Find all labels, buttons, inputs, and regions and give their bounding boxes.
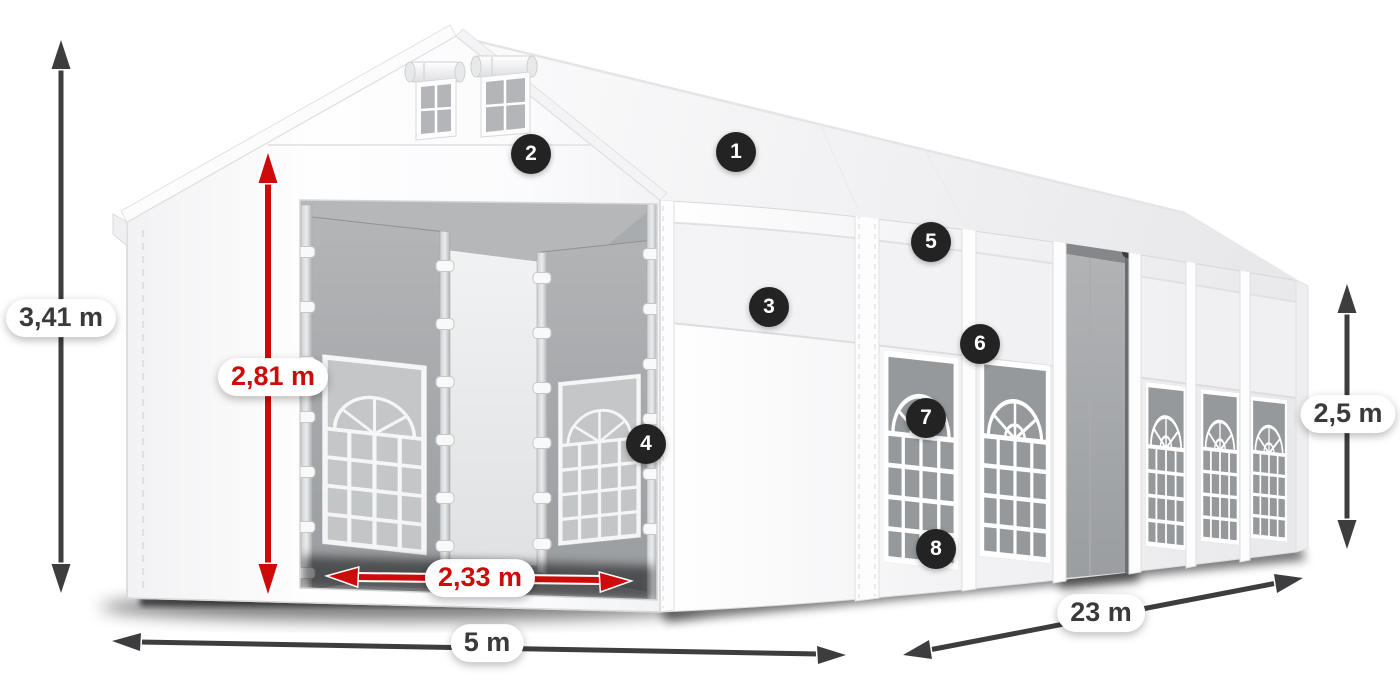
entrance-door-right xyxy=(542,240,654,592)
callout-hotspot-8[interactable]: 8 xyxy=(916,529,956,569)
callout-hotspot-6[interactable]: 6 xyxy=(960,324,1000,364)
callout-hotspot-1[interactable]: 1 xyxy=(716,132,756,172)
tent-dimension-diagram: 3,41 m 2,81 m 2,33 m 5 m 23 m 2,5 m 1 2 … xyxy=(0,0,1400,700)
dimension-label-total-height: 3,41 m xyxy=(6,299,116,337)
callout-hotspot-7[interactable]: 7 xyxy=(906,398,946,438)
entrance-door-left xyxy=(303,216,446,590)
gable-vent-right xyxy=(471,56,537,137)
dimension-label-entrance-height: 2,81 m xyxy=(218,358,328,396)
dimension-label-entrance-width: 2,33 m xyxy=(425,559,535,597)
dimension-label-front-width: 5 m xyxy=(451,624,524,662)
callout-hotspot-2[interactable]: 2 xyxy=(511,134,551,174)
callout-hotspot-4[interactable]: 4 xyxy=(626,424,666,464)
callout-hotspot-5[interactable]: 5 xyxy=(911,222,951,262)
dimension-label-side-length: 23 m xyxy=(1057,594,1145,632)
entrance-interior xyxy=(297,200,661,602)
callout-hotspot-3[interactable]: 3 xyxy=(749,287,789,327)
side-doorway-open xyxy=(1066,236,1134,578)
tent-illustration xyxy=(0,0,1400,700)
dimension-label-side-height: 2,5 m xyxy=(1300,395,1395,433)
